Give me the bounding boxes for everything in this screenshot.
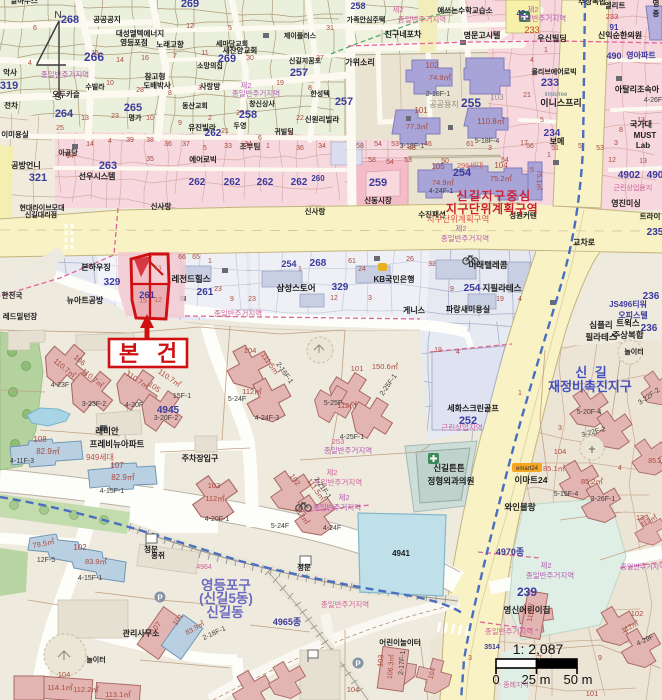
- svg-text:101: 101: [351, 364, 364, 373]
- svg-text:신사랑: 신사랑: [151, 201, 172, 211]
- svg-text:영등포점: 영등포점: [120, 37, 148, 47]
- svg-text:319: 319: [0, 80, 18, 92]
- svg-text:1: 1: [208, 258, 212, 265]
- svg-text:신길튼튼: 신길튼튼: [433, 463, 464, 473]
- svg-text:도배박사: 도배박사: [143, 80, 171, 90]
- svg-text:75.1㎡: 75.1㎡: [535, 170, 543, 191]
- svg-text:4: 4: [108, 138, 112, 145]
- svg-text:1: 1: [266, 143, 270, 150]
- svg-text:놀이터: 놀이터: [86, 655, 105, 664]
- svg-text:공방언니: 공방언니: [11, 160, 40, 170]
- svg-text:24: 24: [358, 266, 366, 273]
- svg-text:260: 260: [311, 174, 325, 183]
- svg-text:263: 263: [99, 160, 117, 172]
- svg-text:명문고시텔: 명문고시텔: [464, 30, 501, 40]
- svg-text:P: P: [355, 660, 361, 669]
- svg-text:현대라이브모대: 현대라이브모대: [19, 203, 64, 212]
- svg-text:61: 61: [466, 141, 474, 148]
- svg-text:4: 4: [456, 349, 460, 356]
- svg-text:34: 34: [244, 141, 252, 148]
- svg-text:12: 12: [186, 23, 194, 30]
- svg-text:뉴아트공방: 뉴아트공방: [67, 295, 104, 305]
- svg-text:제2: 제2: [392, 5, 403, 14]
- svg-text:8: 8: [619, 127, 623, 134]
- svg-text:103: 103: [208, 481, 221, 490]
- svg-text:신익순한의원: 신익순한의원: [598, 30, 642, 40]
- svg-text:15F-1: 15F-1: [173, 393, 191, 400]
- svg-text:22: 22: [296, 115, 304, 122]
- svg-text:113.1㎡: 113.1㎡: [105, 690, 131, 699]
- svg-text:262: 262: [257, 177, 274, 188]
- svg-text:235: 235: [647, 227, 662, 238]
- svg-text:50: 50: [441, 158, 449, 165]
- svg-text:주차장입구: 주차장입구: [182, 453, 219, 463]
- svg-text:3: 3: [488, 145, 492, 152]
- svg-text:26: 26: [406, 256, 414, 263]
- svg-text:262: 262: [291, 177, 308, 188]
- svg-text:레전드힐스: 레전드힐스: [171, 274, 210, 284]
- svg-text:264: 264: [55, 108, 74, 120]
- svg-text:85.2㎡: 85.2㎡: [581, 477, 604, 486]
- svg-text:5: 5: [288, 130, 292, 137]
- svg-text:112㎡: 112㎡: [205, 494, 225, 503]
- svg-text:66: 66: [178, 254, 186, 261]
- svg-text:에어로빅: 에어로빅: [189, 154, 217, 164]
- svg-text:6: 6: [258, 135, 262, 142]
- svg-text:9: 9: [230, 296, 234, 303]
- svg-text:14: 14: [66, 153, 74, 160]
- svg-text:두영: 두영: [234, 121, 247, 130]
- svg-text:공공용지: 공공용지: [429, 100, 458, 109]
- svg-text:신사랑: 신사랑: [305, 206, 326, 216]
- svg-text:본: 본: [119, 341, 139, 366]
- svg-text:33: 33: [224, 143, 232, 150]
- svg-text:39: 39: [126, 137, 134, 144]
- svg-text:어린이놀이터: 어린이놀이터: [379, 637, 420, 647]
- svg-text:104: 104: [347, 685, 360, 694]
- svg-text:게니스: 게니스: [403, 305, 426, 315]
- svg-text:4-23F: 4-23F: [51, 382, 69, 389]
- svg-text:노래고향: 노래고향: [156, 39, 184, 49]
- svg-text:16: 16: [141, 55, 149, 62]
- svg-text:전차: 전차: [4, 100, 18, 110]
- svg-text:12: 12: [608, 157, 616, 164]
- svg-text:17: 17: [520, 140, 528, 147]
- svg-text:58: 58: [368, 157, 376, 164]
- svg-text:4-24F-1: 4-24F-1: [429, 188, 454, 195]
- svg-text:32: 32: [428, 261, 436, 268]
- svg-text:신동시장: 신동시장: [364, 195, 392, 205]
- svg-text:한천국: 한천국: [2, 290, 23, 300]
- svg-text:5: 5: [228, 25, 232, 32]
- svg-text:1: 1: [518, 390, 522, 397]
- svg-text:46: 46: [424, 141, 432, 148]
- svg-text:종일반주거지역: 종일반주거지역: [232, 88, 280, 98]
- svg-text:아탈리조속아: 아탈리조속아: [615, 84, 660, 94]
- svg-text:이미용실: 이미용실: [1, 129, 29, 139]
- svg-text:종일반주거지역: 종일반주거지역: [485, 626, 533, 636]
- svg-text:48: 48: [408, 145, 416, 152]
- svg-text:3-20F-2: 3-20F-2: [154, 415, 179, 422]
- svg-text:제2: 제2: [540, 561, 551, 570]
- svg-text:본하우징: 본하우징: [81, 262, 110, 272]
- svg-text:KB국민은행: KB국민은행: [374, 274, 415, 284]
- svg-text:건: 건: [157, 341, 177, 366]
- svg-text:1: 1: [547, 152, 551, 159]
- svg-text:5-24F: 5-24F: [228, 396, 246, 403]
- svg-text:101: 101: [414, 106, 428, 115]
- svg-text:신길지구중심: 신길지구중심: [456, 188, 531, 203]
- svg-text:83.9㎡: 83.9㎡: [85, 557, 108, 566]
- svg-text:53: 53: [391, 141, 399, 148]
- svg-text:54: 54: [501, 157, 509, 164]
- svg-text:세화스크린골프: 세화스크린골프: [447, 403, 499, 413]
- svg-text:5: 5: [578, 143, 582, 150]
- svg-text:265: 265: [124, 102, 142, 114]
- svg-text:15: 15: [139, 298, 147, 305]
- svg-text:239: 239: [517, 585, 537, 599]
- svg-text:37: 37: [316, 55, 324, 62]
- svg-text:101: 101: [586, 689, 599, 698]
- svg-text:종일반주거지역: 종일반주거지역: [324, 445, 372, 455]
- svg-text:4-11F-3: 4-11F-3: [10, 458, 34, 465]
- svg-text:3: 3: [614, 140, 618, 147]
- svg-text:13: 13: [636, 515, 644, 522]
- svg-text:P: P: [157, 594, 163, 603]
- svg-text:4-26F: 4-26F: [644, 97, 662, 104]
- svg-text:종일반주거지역: 종일반주거지역: [214, 308, 262, 318]
- svg-text:296세대: 296세대: [457, 161, 483, 170]
- svg-text:영아파트: 영아파트: [626, 50, 656, 60]
- svg-text:제2: 제2: [527, 5, 538, 14]
- svg-text:112.2㎡: 112.2㎡: [73, 685, 99, 694]
- svg-text:종일반주거지역: 종일반주거지역: [620, 562, 662, 571]
- svg-text:신길대리점: 신길대리점: [25, 210, 57, 219]
- svg-text:필라테스: 필라테스: [585, 332, 616, 342]
- svg-text:19: 19: [496, 296, 504, 303]
- svg-text:107: 107: [110, 461, 124, 470]
- svg-text:올리브에어로빅: 올리브에어로빅: [531, 67, 576, 76]
- svg-text:애쓰는수학교습소: 애쓰는수학교습소: [437, 5, 492, 15]
- svg-text:엘리트: 엘리트: [605, 0, 626, 10]
- svg-text:지필라테스: 지필라테스: [482, 283, 521, 293]
- svg-text:종일반주거지역: 종일반주거지역: [441, 233, 489, 243]
- svg-text:254: 254: [464, 283, 481, 294]
- svg-text:102: 102: [425, 61, 439, 70]
- svg-text:이니스프리: 이니스프리: [540, 97, 581, 108]
- svg-text:정문: 정문: [297, 562, 311, 572]
- svg-text:지구단위계획구역: 지구단위계획구역: [427, 214, 490, 224]
- svg-text:1: 1: [544, 47, 548, 54]
- svg-text:4-15F-1: 4-15F-1: [78, 575, 103, 582]
- svg-text:268: 268: [61, 14, 79, 26]
- svg-text:10: 10: [146, 115, 154, 122]
- svg-text:12: 12: [154, 297, 162, 304]
- svg-text:5-18F-4: 5-18F-4: [475, 138, 500, 145]
- svg-text:유진빌라: 유진빌라: [188, 122, 216, 132]
- svg-text:102: 102: [73, 543, 87, 552]
- svg-text:교차로: 교차로: [573, 237, 596, 247]
- svg-text:emart24: emart24: [516, 466, 539, 472]
- svg-text:창신상사: 창신상사: [249, 99, 275, 108]
- svg-text:0: 0: [492, 672, 499, 687]
- svg-text:5-15F-4: 5-15F-4: [554, 491, 579, 498]
- svg-text:이마트24: 이마트24: [515, 475, 548, 485]
- svg-text:제2: 제2: [326, 468, 337, 477]
- svg-text:3: 3: [368, 295, 372, 302]
- svg-text:(신길5동): (신길5동): [199, 591, 253, 606]
- svg-text:8: 8: [308, 85, 312, 92]
- svg-text:254: 254: [281, 259, 296, 269]
- svg-text:74.9㎡: 74.9㎡: [432, 178, 455, 187]
- svg-text:친구네포차: 친구네포차: [385, 29, 422, 39]
- svg-text:13: 13: [639, 158, 647, 165]
- svg-text:329: 329: [332, 282, 349, 293]
- svg-text:54: 54: [374, 141, 382, 148]
- svg-text:동산교회: 동산교회: [182, 101, 208, 110]
- svg-text:4902: 4902: [618, 170, 641, 181]
- svg-text:53: 53: [404, 157, 412, 164]
- svg-text:종일반주거지역: 종일반주거지역: [526, 570, 574, 580]
- svg-text:50 m: 50 m: [564, 672, 593, 687]
- svg-text:259: 259: [369, 177, 387, 189]
- svg-text:명가: 명가: [129, 113, 142, 122]
- svg-text:9: 9: [598, 655, 602, 662]
- svg-text:5: 5: [203, 145, 207, 152]
- svg-text:레드밀턴장: 레드밀턴장: [3, 311, 38, 321]
- svg-text:4-24F: 4-24F: [323, 525, 341, 532]
- svg-text:255: 255: [461, 96, 481, 110]
- svg-text:5-20F-4: 5-20F-4: [577, 409, 602, 416]
- svg-text:30: 30: [246, 55, 254, 62]
- svg-text:놀이터: 놀이터: [624, 347, 643, 356]
- svg-text:오두카슬: 오두카슬: [52, 89, 80, 99]
- svg-text:재정비촉진지구: 재정비촉진지구: [548, 379, 632, 394]
- svg-text:85.1㎡: 85.1㎡: [543, 464, 566, 473]
- svg-text:참고형: 참고형: [145, 71, 166, 81]
- svg-text:10: 10: [106, 80, 114, 87]
- svg-text:104: 104: [244, 346, 257, 355]
- svg-text:근린상업지역: 근린상업지역: [441, 422, 482, 432]
- svg-text:233: 233: [541, 77, 559, 89]
- svg-text:108: 108: [33, 435, 47, 444]
- svg-text:65: 65: [192, 254, 200, 261]
- svg-text:4: 4: [28, 60, 32, 67]
- svg-text:프레비뉴아파트: 프레비뉴아파트: [90, 439, 145, 449]
- svg-text:103: 103: [490, 93, 504, 102]
- svg-text:악사: 악사: [3, 67, 17, 77]
- svg-text:종일반주거지역: 종일반주거지역: [321, 599, 369, 609]
- svg-text:103: 103: [375, 654, 385, 667]
- svg-text:선우시스템: 선우시스템: [79, 171, 116, 181]
- svg-text:종례지역: 종례지역: [503, 680, 529, 689]
- svg-text:75.2㎡: 75.2㎡: [490, 174, 513, 183]
- svg-text:233: 233: [606, 12, 619, 21]
- svg-text:35: 35: [146, 156, 154, 163]
- svg-text:85.2: 85.2: [648, 458, 662, 465]
- svg-text:13: 13: [81, 115, 89, 122]
- svg-text:파랑새미용실: 파랑새미용실: [446, 304, 490, 314]
- svg-text:수빌라: 수빌라: [85, 82, 105, 91]
- svg-text:Lab: Lab: [636, 141, 650, 150]
- svg-text:공공공지: 공공공지: [93, 14, 121, 24]
- svg-text:3-26F-1: 3-26F-1: [591, 496, 616, 503]
- svg-text:82.9㎡: 82.9㎡: [36, 447, 60, 456]
- svg-text:4-24F-3: 4-24F-3: [255, 415, 280, 422]
- svg-text:257: 257: [290, 67, 308, 79]
- svg-text:4-20F: 4-20F: [125, 402, 143, 409]
- svg-text:490: 490: [647, 170, 662, 181]
- svg-text:트윅스: 트윅스: [616, 318, 640, 328]
- svg-text:53: 53: [596, 145, 604, 152]
- svg-text:1: 1: [58, 90, 62, 97]
- svg-text:종일반주거지역: 종일반주거지역: [41, 69, 89, 79]
- svg-text:정형외과의원: 정형외과의원: [428, 476, 475, 486]
- svg-text:23: 23: [111, 113, 119, 120]
- svg-text:영: 영: [653, 0, 660, 8]
- svg-text:9: 9: [450, 286, 454, 293]
- svg-text:104: 104: [554, 447, 567, 456]
- svg-text:종일반주거지역: 종일반주거지역: [518, 13, 566, 23]
- svg-text:innisfree: innisfree: [545, 92, 568, 98]
- svg-text:삼성스토어: 삼성스토어: [276, 283, 315, 293]
- svg-text:19: 19: [276, 80, 284, 87]
- svg-text:257: 257: [335, 96, 353, 108]
- svg-text:2: 2: [208, 115, 212, 122]
- svg-text:4-25F-1: 4-25F-1: [340, 434, 365, 441]
- svg-text:5-24F: 5-24F: [271, 523, 289, 530]
- svg-text:38: 38: [146, 137, 154, 144]
- svg-text:소망의집: 소망의집: [197, 61, 223, 70]
- svg-text:36: 36: [164, 141, 172, 148]
- svg-text:25: 25: [56, 125, 64, 132]
- svg-text:1: 1: [298, 266, 302, 273]
- svg-text:한성텍: 한성텍: [310, 89, 329, 98]
- svg-text:와인블랑: 와인블랑: [504, 502, 535, 512]
- svg-text:5: 5: [540, 117, 544, 124]
- svg-text:3-23F-2: 3-23F-2: [82, 401, 107, 408]
- svg-text:7: 7: [173, 53, 177, 60]
- svg-text:3: 3: [558, 425, 562, 432]
- svg-text:82.9㎡: 82.9㎡: [111, 473, 135, 482]
- svg-text:11: 11: [201, 50, 208, 57]
- svg-text:150.6㎡: 150.6㎡: [372, 362, 399, 371]
- svg-text:트라이: 트라이: [640, 211, 661, 221]
- svg-text:신원리빌라: 신원리빌라: [305, 114, 340, 124]
- svg-text:신 길: 신 길: [575, 365, 609, 380]
- svg-text:27: 27: [236, 110, 244, 117]
- svg-text:114.1㎡: 114.1㎡: [47, 683, 73, 692]
- svg-text:MUST: MUST: [634, 131, 657, 140]
- svg-text:2-18F-1: 2-18F-1: [426, 91, 451, 98]
- svg-text:268: 268: [310, 258, 327, 269]
- svg-text:래미안: 래미안: [95, 426, 119, 436]
- svg-text:5-25F: 5-25F: [324, 400, 342, 407]
- svg-text:262: 262: [224, 177, 241, 188]
- svg-text:15: 15: [91, 50, 99, 57]
- svg-text:37: 37: [182, 141, 190, 148]
- svg-text:19: 19: [434, 347, 442, 354]
- svg-text:23: 23: [248, 296, 256, 303]
- svg-text:주상복합: 주상복합: [612, 330, 643, 340]
- svg-text:104: 104: [58, 670, 71, 679]
- svg-text:4-20F-1: 4-20F-1: [205, 516, 230, 523]
- svg-text:3514: 3514: [484, 644, 500, 651]
- svg-text:329: 329: [104, 277, 121, 288]
- svg-text:종일반주거지역: 종일반주거지역: [398, 14, 446, 24]
- svg-text:4965종: 4965종: [273, 617, 301, 627]
- svg-text:261: 261: [197, 287, 214, 298]
- svg-text:제2: 제2: [455, 224, 466, 233]
- svg-text:4941: 4941: [392, 549, 410, 558]
- svg-text:77.3㎡: 77.3㎡: [406, 122, 429, 131]
- svg-text:21: 21: [221, 128, 229, 135]
- svg-text:14: 14: [116, 57, 124, 64]
- svg-text:233: 233: [524, 25, 539, 35]
- svg-text:종: 종: [653, 9, 660, 18]
- svg-text:세마당교회: 세마당교회: [216, 39, 248, 48]
- svg-text:490: 490: [606, 51, 621, 61]
- svg-text:51: 51: [551, 145, 559, 152]
- svg-text:23: 23: [214, 286, 222, 293]
- svg-text:13: 13: [637, 117, 645, 124]
- svg-text:8: 8: [168, 90, 172, 97]
- svg-text:3: 3: [468, 655, 472, 662]
- svg-text:12F-5: 12F-5: [37, 557, 55, 564]
- svg-text:JS496티워: JS496티워: [609, 299, 647, 309]
- svg-text:가위소리: 가위소리: [345, 57, 374, 67]
- svg-text:258: 258: [350, 1, 365, 11]
- svg-text:262: 262: [189, 177, 206, 188]
- svg-text:근린상업용지: 근린상업용지: [614, 183, 653, 192]
- svg-text:3: 3: [198, 85, 202, 92]
- svg-text:7: 7: [538, 655, 542, 662]
- svg-text:가족안심주택: 가족안심주택: [347, 15, 386, 24]
- svg-text:봉쥐: 봉쥐: [151, 550, 165, 560]
- svg-text:심플리: 심플리: [589, 320, 612, 330]
- svg-text:13: 13: [154, 265, 162, 272]
- svg-text:6: 6: [33, 25, 37, 32]
- svg-text:269: 269: [181, 0, 199, 10]
- svg-text:12: 12: [330, 295, 338, 302]
- svg-text:5: 5: [530, 167, 534, 174]
- svg-text:4964: 4964: [196, 564, 212, 571]
- svg-text:제2: 제2: [240, 81, 251, 90]
- svg-text:31: 31: [326, 25, 334, 32]
- svg-text:54: 54: [386, 159, 394, 166]
- svg-text:제2: 제2: [338, 493, 349, 502]
- svg-text:34: 34: [318, 143, 326, 150]
- svg-text:61: 61: [348, 258, 356, 265]
- svg-text:미래텔레콤: 미래텔레콤: [468, 260, 507, 270]
- svg-text:밀하우스: 밀하우스: [10, 0, 38, 5]
- svg-text:110.8㎡: 110.8㎡: [477, 117, 504, 126]
- svg-text:9: 9: [178, 120, 182, 127]
- svg-text:28: 28: [136, 87, 144, 94]
- svg-text:4-15F-1: 4-15F-1: [100, 488, 125, 495]
- svg-text:우신빌딩: 우신빌딩: [537, 33, 566, 43]
- svg-text:21: 21: [523, 92, 531, 99]
- svg-text:신길동: 신길동: [206, 605, 243, 620]
- svg-text:4: 4: [518, 296, 522, 303]
- svg-text:4: 4: [530, 57, 534, 64]
- svg-text:제이플러스: 제이플러스: [284, 31, 317, 40]
- svg-text:14: 14: [86, 141, 94, 148]
- svg-text:112㎡: 112㎡: [242, 387, 262, 396]
- svg-text:102: 102: [631, 609, 644, 618]
- svg-text:대성엘텍에너지: 대성엘텍에너지: [116, 28, 164, 38]
- svg-text:74.9㎡: 74.9㎡: [429, 73, 452, 82]
